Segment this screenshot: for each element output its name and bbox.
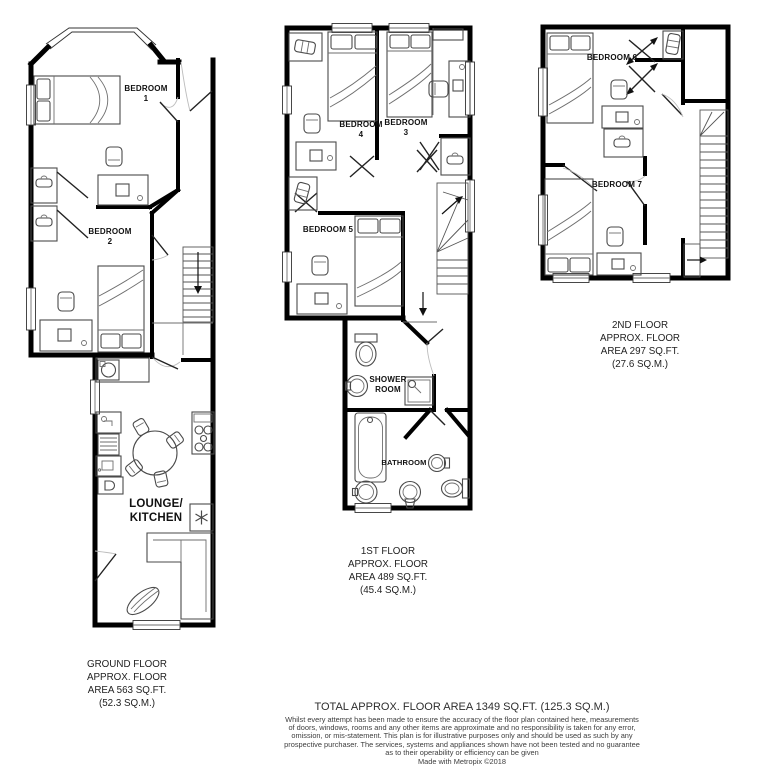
room-label-bedroom1: BEDROOM 1: [124, 84, 167, 103]
front-door: [181, 62, 212, 111]
sink-icon: [96, 412, 121, 433]
chair-icon: [312, 256, 328, 275]
chair-icon: [106, 147, 122, 166]
chair-icon: [607, 227, 623, 246]
room-label-bedroom4: BEDROOM 4: [339, 120, 382, 139]
room-label-shower-room: SHOWER ROOM: [369, 375, 406, 394]
bed-icon: [355, 216, 403, 306]
desk-icon: [296, 142, 336, 170]
sink-icon: [353, 481, 378, 503]
second-floor-plan: [539, 27, 729, 283]
toilet-icon: [442, 479, 470, 498]
chair-icon: [611, 80, 627, 99]
counter-unit: [98, 477, 123, 494]
sink-icon: [400, 482, 421, 509]
closet-icon: [663, 31, 683, 59]
bathtub-icon: [355, 413, 386, 482]
bed-icon: [328, 32, 377, 121]
toilet-icon: [355, 334, 377, 366]
stairs-icon: [684, 110, 728, 277]
appliance-icon: [98, 434, 119, 455]
dining-table-icon: [124, 418, 184, 488]
first-floor-plan: [283, 24, 475, 513]
room-label-bedroom5: BEDROOM 5: [303, 225, 353, 235]
chair-icon: [304, 114, 320, 133]
desk-icon: [297, 284, 347, 314]
ground-floor-plan: [27, 28, 215, 630]
room-label-lounge-kitchen: LOUNGE/ KITCHEN: [129, 498, 183, 525]
sink-icon: [346, 376, 368, 397]
stairs-icon: [403, 183, 468, 322]
room-label-bedroom2: BEDROOM 2: [88, 227, 131, 246]
wardrobe-icon: [441, 138, 470, 175]
total-floor-area: TOTAL APPROX. FLOOR AREA 1349 SQ.FT. (12…: [314, 701, 609, 713]
caption-first-floor: 1ST FLOOR APPROX. FLOOR AREA 489 SQ.FT. …: [348, 545, 428, 597]
shower-icon: [405, 377, 433, 405]
closet-icon: [604, 129, 643, 157]
bed-icon: [547, 33, 593, 123]
sink-icon: [429, 455, 450, 472]
desk-icon: [98, 175, 148, 205]
bed-icon: [34, 76, 120, 124]
kitchen-units: [96, 358, 149, 494]
closet-icon: [31, 168, 88, 241]
caption-ground-floor: GROUND FLOOR APPROX. FLOOR AREA 563 SQ.F…: [87, 658, 167, 710]
bay-window: [46, 28, 156, 50]
closet-icon: [433, 29, 463, 40]
room-label-bedroom7: BEDROOM 7: [592, 180, 642, 190]
room-label-bedroom3: BEDROOM 3: [384, 118, 427, 137]
room-label-bathroom: BATHROOM: [381, 458, 426, 467]
closet-icon: [289, 33, 322, 61]
stairs-icon: [152, 247, 213, 355]
bed-icon: [545, 179, 593, 275]
bed-icon: [387, 32, 432, 117]
credit-text: Made with Metropix ©2018: [418, 758, 506, 766]
skylight-icon: [626, 37, 658, 95]
disclaimer-text: Whilst every attempt has been made to en…: [212, 716, 712, 757]
bed-icon: [98, 266, 144, 352]
chair-icon: [58, 292, 74, 311]
sofa-icon: [147, 533, 213, 619]
floorplan-page: BEDROOM 1 BEDROOM 2 LOUNGE/ KITCHEN BEDR…: [0, 0, 768, 772]
room-label-bedroom6: BEDROOM 6: [587, 53, 637, 63]
desk-icon: [597, 253, 641, 275]
counter-unit: [96, 456, 121, 476]
caption-second-floor: 2ND FLOOR APPROX. FLOOR AREA 297 SQ.FT. …: [600, 319, 680, 371]
rug-icon: [123, 583, 163, 620]
freezer-icon: [190, 504, 213, 531]
desk-icon: [602, 106, 643, 128]
desk-icon: [40, 320, 92, 351]
washing-machine-icon: [98, 360, 119, 380]
